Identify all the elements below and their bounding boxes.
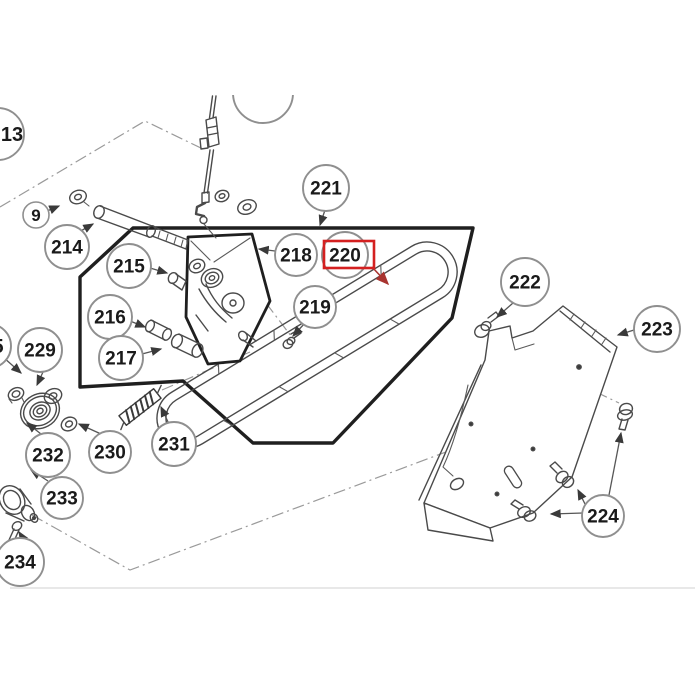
callout-216: 216 [88, 295, 132, 339]
callout-232: 232 [26, 433, 70, 477]
hub-drawing [0, 481, 39, 524]
callout-231: 231 [152, 422, 196, 466]
callout-233: 233 [41, 477, 83, 519]
svg-text:231: 231 [158, 435, 190, 456]
svg-text:5: 5 [0, 336, 4, 358]
idler-pulley-cluster-drawing [0, 384, 167, 541]
svg-text:221: 221 [310, 179, 342, 200]
svg-text:233: 233 [46, 489, 78, 510]
svg-text:230: 230 [94, 443, 126, 464]
svg-text:13: 13 [1, 124, 23, 146]
callout-222: 222 [501, 258, 549, 306]
callout-5: 5 [0, 324, 11, 368]
parts-diagram: 1392142152162172182192202212222232242292… [0, 0, 700, 700]
callout-221: 221 [303, 165, 349, 211]
svg-text:229: 229 [24, 341, 56, 362]
svg-text:232: 232 [32, 446, 64, 467]
svg-text:223: 223 [641, 320, 673, 341]
callout-234: 234 [0, 538, 44, 586]
leader-220 [372, 267, 388, 284]
svg-text:9: 9 [31, 206, 40, 225]
svg-text:214: 214 [51, 238, 83, 259]
svg-text:215: 215 [113, 257, 145, 278]
svg-text:216: 216 [94, 308, 126, 329]
svg-text:224: 224 [587, 507, 619, 528]
callout-13: 13 [0, 108, 24, 160]
svg-text:220: 220 [329, 246, 361, 267]
callout-224: 224 [582, 495, 624, 537]
callout-230: 230 [89, 431, 131, 473]
diagram-canvas: 1392142152162172182192202212222232242292… [0, 0, 700, 700]
callout-217: 217 [99, 336, 143, 380]
callout-partial [233, 63, 293, 123]
svg-text:222: 222 [509, 273, 541, 294]
callout-219: 219 [294, 286, 336, 328]
callout-214: 214 [45, 225, 89, 269]
callout-9: 9 [23, 202, 49, 228]
svg-text:234: 234 [4, 553, 36, 574]
svg-text:217: 217 [105, 349, 137, 370]
screw-224a [616, 402, 633, 430]
svg-text:219: 219 [299, 298, 331, 319]
callout-223: 223 [634, 306, 680, 352]
callout-215: 215 [107, 244, 151, 288]
control-rod-drawing [196, 96, 219, 238]
svg-text:218: 218 [280, 246, 312, 267]
callout-218: 218 [275, 234, 317, 276]
callout-220: 220 [322, 232, 368, 278]
callout-229: 229 [18, 328, 62, 372]
